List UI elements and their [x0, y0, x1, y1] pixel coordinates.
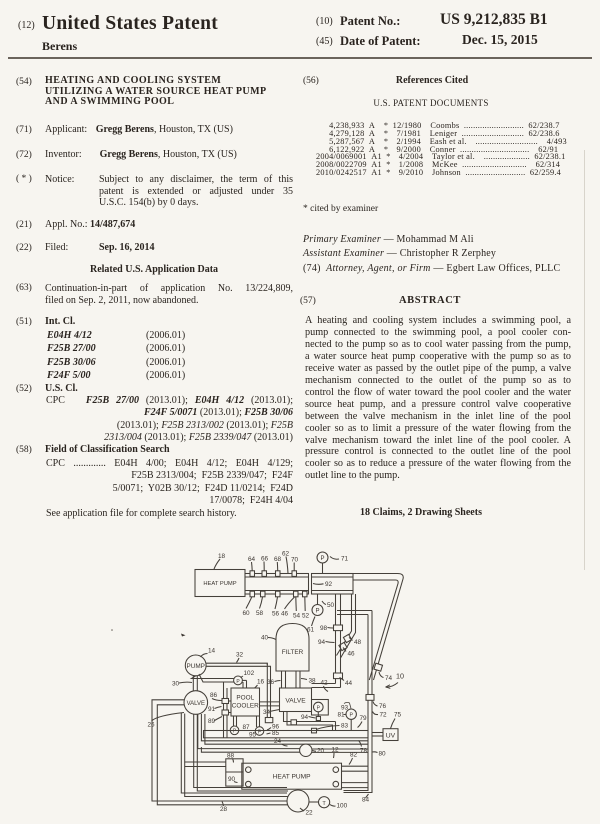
svg-text:10: 10	[396, 672, 404, 681]
svg-text:82: 82	[350, 752, 358, 759]
svg-text:POOL: POOL	[236, 695, 254, 702]
svg-text:87: 87	[243, 724, 251, 731]
svg-text:T: T	[322, 801, 326, 807]
svg-text:89: 89	[208, 718, 216, 725]
svg-text:54: 54	[293, 613, 301, 620]
svg-text:32: 32	[236, 652, 244, 659]
svg-text:P: P	[320, 556, 324, 562]
svg-text:92: 92	[325, 581, 333, 588]
svg-text:98: 98	[320, 625, 328, 632]
svg-text:HEAT PUMP: HEAT PUMP	[203, 581, 236, 587]
svg-text:COOLER: COOLER	[232, 703, 259, 710]
svg-text:42: 42	[321, 680, 329, 687]
svg-text:44: 44	[345, 680, 353, 687]
svg-text:28: 28	[220, 806, 228, 813]
svg-text:56: 56	[272, 611, 280, 618]
svg-text:94: 94	[301, 714, 309, 721]
svg-text:HEAT PUMP: HEAT PUMP	[273, 774, 311, 781]
svg-text:75: 75	[394, 712, 402, 719]
svg-text:80: 80	[379, 751, 387, 758]
svg-text:18: 18	[218, 553, 226, 560]
svg-text:20: 20	[317, 748, 325, 755]
svg-text:100: 100	[337, 803, 348, 810]
svg-text:68: 68	[274, 556, 282, 563]
svg-text:VALVE: VALVE	[285, 698, 306, 705]
svg-text:74: 74	[385, 675, 393, 682]
svg-text:71: 71	[341, 556, 349, 563]
svg-text:70: 70	[291, 557, 299, 564]
svg-text:48: 48	[354, 639, 362, 646]
svg-text:14: 14	[208, 648, 216, 655]
svg-text:94: 94	[318, 639, 326, 646]
svg-text:22: 22	[306, 810, 314, 817]
svg-text:86: 86	[210, 692, 218, 699]
svg-text:P: P	[315, 609, 319, 615]
svg-text:79: 79	[360, 715, 368, 722]
svg-text:PUMP: PUMP	[186, 663, 204, 670]
svg-text:91: 91	[208, 706, 216, 713]
svg-text:102: 102	[244, 670, 255, 677]
svg-text:60: 60	[243, 610, 251, 617]
svg-text:38: 38	[309, 678, 317, 685]
svg-text:24: 24	[274, 738, 282, 745]
svg-text:16: 16	[257, 679, 265, 686]
svg-text:50: 50	[327, 602, 335, 609]
svg-text:62: 62	[282, 551, 290, 558]
svg-text:85: 85	[272, 730, 280, 737]
svg-text:26: 26	[148, 722, 156, 729]
svg-text:40: 40	[261, 635, 269, 642]
svg-text:83: 83	[341, 723, 349, 730]
svg-text:46: 46	[348, 651, 356, 658]
svg-text:64: 64	[248, 556, 256, 563]
svg-text:52: 52	[302, 613, 310, 620]
svg-text:66: 66	[261, 556, 269, 563]
svg-text:12: 12	[332, 747, 340, 754]
svg-text:46: 46	[281, 611, 289, 618]
svg-text:VALVE: VALVE	[187, 701, 205, 707]
svg-text:78: 78	[360, 748, 368, 755]
svg-text:88: 88	[227, 753, 235, 760]
svg-text:76: 76	[379, 703, 387, 710]
svg-text:UV: UV	[386, 733, 396, 740]
svg-text:93: 93	[341, 705, 349, 712]
svg-text:P: P	[349, 713, 353, 719]
svg-text:72: 72	[380, 712, 388, 719]
svg-text:P: P	[317, 705, 321, 711]
svg-text:30: 30	[172, 681, 180, 688]
svg-text:FILTER: FILTER	[282, 649, 304, 656]
svg-text:58: 58	[256, 610, 264, 617]
